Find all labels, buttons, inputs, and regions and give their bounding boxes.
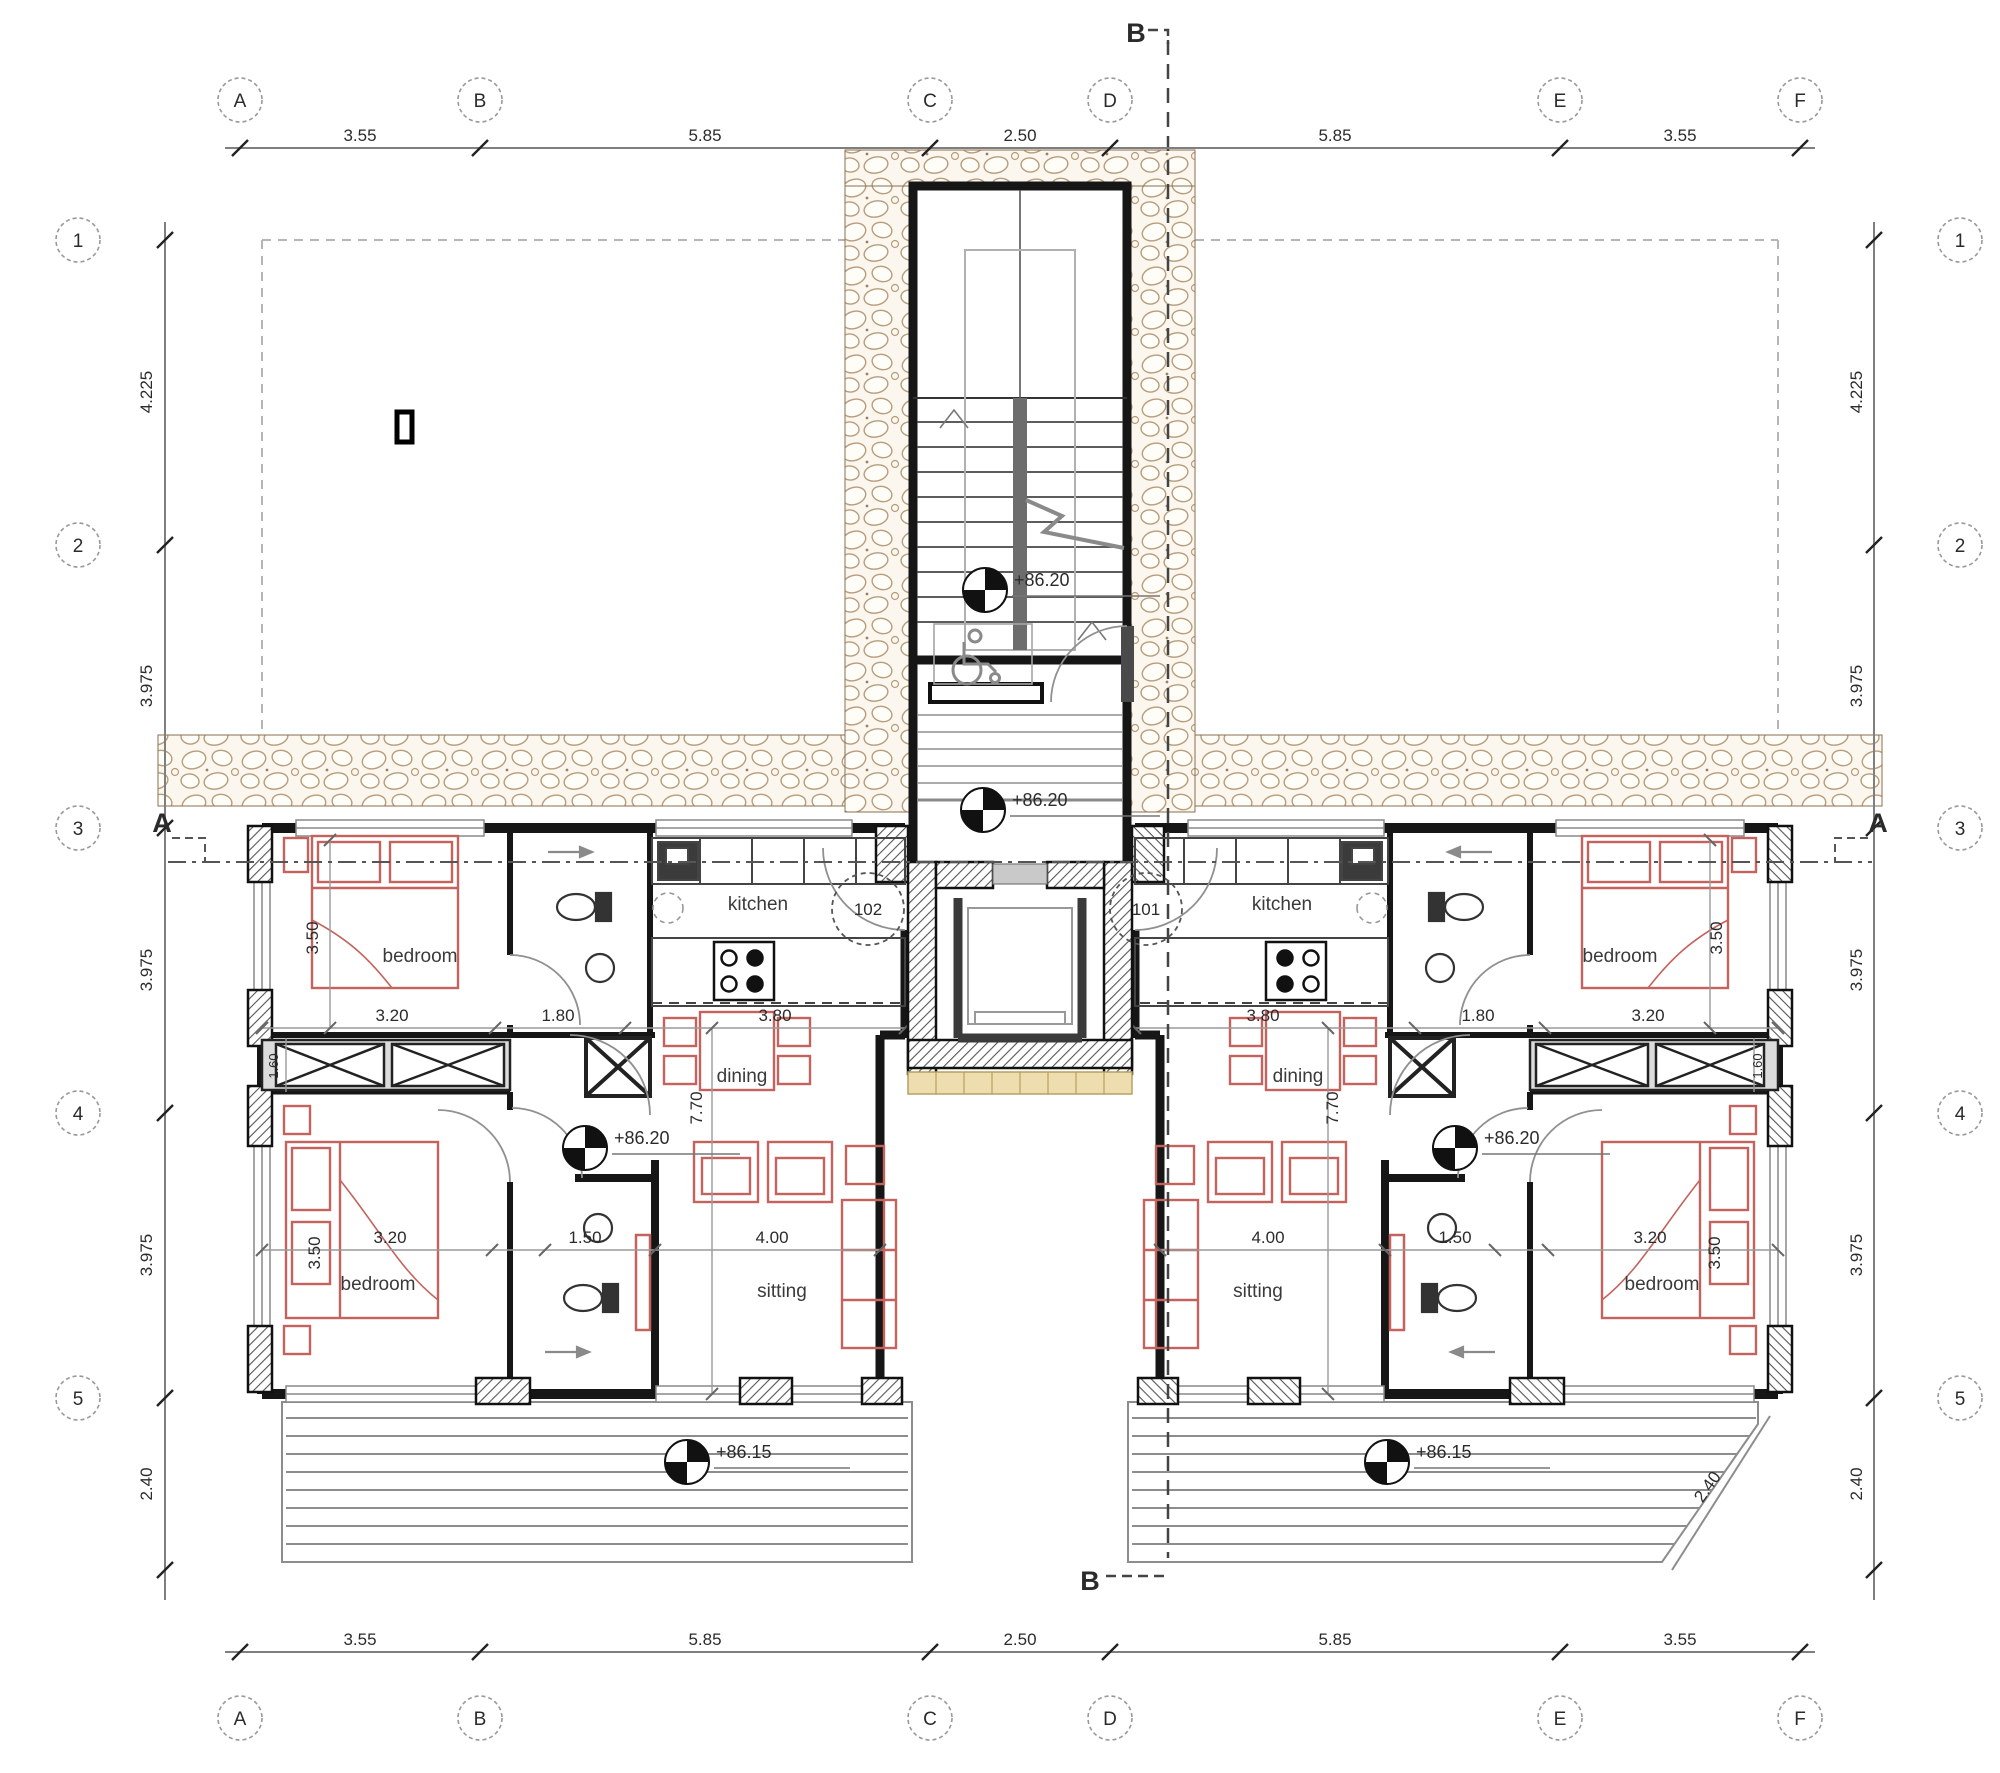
grid-col-b-bottom: B bbox=[474, 1709, 487, 1730]
grid-row-5-right: 5 bbox=[1955, 1389, 1966, 1410]
grid-row-2-left: 2 bbox=[73, 536, 84, 557]
dim-right-34: 3.975 bbox=[1847, 949, 1866, 992]
dim-left-5t: 2.40 bbox=[137, 1467, 156, 1500]
room-label-kitchen-left: kitchen bbox=[728, 894, 788, 915]
level-entrance-hall: +86.20 bbox=[1012, 790, 1068, 810]
dim-320-left-lower: 3.20 bbox=[373, 1228, 406, 1247]
room-label-sitting-right: sitting bbox=[1233, 1281, 1283, 1302]
dim-left-45: 3.975 bbox=[137, 1234, 156, 1277]
bathroom-fixtures bbox=[557, 893, 618, 1312]
room-label-bedroom-right-bottom: bedroom bbox=[1625, 1274, 1700, 1295]
dim-left-34: 3.975 bbox=[137, 949, 156, 992]
threshold bbox=[930, 684, 1042, 702]
unit-number-left: 102 bbox=[854, 900, 882, 919]
dim-150-left: 1.50 bbox=[568, 1228, 601, 1247]
grid-col-d-top: D bbox=[1103, 91, 1117, 112]
level-terrace-right: +86.15 bbox=[1416, 1442, 1472, 1462]
stair-rail bbox=[1013, 398, 1027, 650]
grid-col-d-bottom: D bbox=[1103, 1709, 1117, 1730]
room-label-sitting-left: sitting bbox=[757, 1281, 807, 1302]
unit-number-right: 101 bbox=[1132, 900, 1160, 919]
grid-col-a-bottom: A bbox=[234, 1709, 247, 1730]
room-label-bedroom-right-top: bedroom bbox=[1583, 946, 1658, 967]
grid-row-2-right: 2 bbox=[1955, 536, 1966, 557]
room-label-kitchen-right: kitchen bbox=[1252, 894, 1312, 915]
dim-bottom-de: 5.85 bbox=[1318, 1630, 1351, 1649]
dim-top-de: 5.85 bbox=[1318, 126, 1351, 145]
hob-icon bbox=[714, 942, 774, 1000]
floor-plan-drawing: A B C D E F A B C D E F 1 2 3 4 5 1 2 3 … bbox=[0, 0, 2000, 1773]
dim-bottom-ab: 3.55 bbox=[343, 1630, 376, 1649]
level-apartment-right: +86.20 bbox=[1484, 1128, 1540, 1148]
level-stair-landing: +86.20 bbox=[1014, 570, 1070, 590]
grid-row-1-right: 1 bbox=[1955, 231, 1966, 252]
dim-320-right-lower: 3.20 bbox=[1633, 1228, 1666, 1247]
room-label-dining-left: dining bbox=[717, 1066, 768, 1087]
grid-col-f-top: F bbox=[1794, 91, 1806, 112]
grid-row-3-left: 3 bbox=[73, 819, 84, 840]
room-label-bedroom-left-bottom: bedroom bbox=[341, 1274, 416, 1295]
section-a-left-label: A bbox=[152, 808, 172, 838]
terrace-right bbox=[1128, 1402, 1770, 1570]
dim-bedroom4-350-right: 3.50 bbox=[1705, 1236, 1724, 1269]
dim-320-left-upper: 3.20 bbox=[375, 1006, 408, 1025]
floor-plan-page: A B C D E F A B C D E F 1 2 3 4 5 1 2 3 … bbox=[0, 0, 2000, 1773]
dim-top-cd: 2.50 bbox=[1003, 126, 1036, 145]
lift-car bbox=[958, 898, 1082, 1038]
apartment-unit-geometry bbox=[248, 820, 911, 1404]
dim-180-left: 1.80 bbox=[541, 1006, 574, 1025]
structural-column bbox=[397, 412, 412, 442]
closet bbox=[262, 1040, 510, 1090]
kitchen-counter bbox=[652, 838, 905, 1006]
dim-380-left: 3.80 bbox=[758, 1006, 791, 1025]
dim-380-right: 3.80 bbox=[1246, 1006, 1279, 1025]
duct-shaft bbox=[586, 1038, 650, 1096]
section-a-right-label: A bbox=[1868, 808, 1888, 838]
dim-bottom-bc: 5.85 bbox=[688, 1630, 721, 1649]
grid-col-a-top: A bbox=[234, 91, 247, 112]
dim-770-left: 7.70 bbox=[687, 1091, 706, 1124]
dim-right-12: 4.225 bbox=[1847, 371, 1866, 414]
dim-top-ef: 3.55 bbox=[1663, 126, 1696, 145]
dim-bottom-ef: 3.55 bbox=[1663, 1630, 1696, 1649]
dim-150-right: 1.50 bbox=[1438, 1228, 1471, 1247]
dim-top-ab: 3.55 bbox=[343, 126, 376, 145]
dim-terrace-240-right: 2.40 bbox=[1690, 1468, 1725, 1506]
shower-panel bbox=[636, 1235, 650, 1330]
grid-row-5-left: 5 bbox=[73, 1389, 84, 1410]
dim-top-bc: 5.85 bbox=[688, 126, 721, 145]
dim-left-23: 3.975 bbox=[137, 665, 156, 708]
dim-320-right-upper: 3.20 bbox=[1631, 1006, 1664, 1025]
dim-400-left: 4.00 bbox=[755, 1228, 788, 1247]
grid-col-c-bottom: C bbox=[923, 1709, 937, 1730]
level-apartment-left: +86.20 bbox=[614, 1128, 670, 1148]
terrace-left bbox=[282, 1402, 912, 1562]
dim-right-5t: 2.40 bbox=[1847, 1467, 1866, 1500]
level-terrace-left: +86.15 bbox=[716, 1442, 772, 1462]
section-line-aa-right-corner bbox=[1835, 838, 1868, 862]
grid-col-b-top: B bbox=[474, 91, 487, 112]
dim-bottom-cd: 2.50 bbox=[1003, 1630, 1036, 1649]
dim-400-right: 4.00 bbox=[1251, 1228, 1284, 1247]
ceiling-light-icon bbox=[653, 893, 683, 923]
dim-bedroom3-350-right: 3.50 bbox=[1707, 921, 1726, 954]
section-b-top-label: B bbox=[1126, 18, 1146, 48]
grid-col-f-bottom: F bbox=[1794, 1709, 1806, 1730]
dim-160-right: 1.60 bbox=[1750, 1053, 1765, 1078]
grid-row-4-left: 4 bbox=[73, 1104, 84, 1125]
dim-770-right: 7.70 bbox=[1323, 1091, 1342, 1124]
dim-bedroom2-350-left: 3.50 bbox=[305, 1236, 324, 1269]
dim-right-45: 3.975 bbox=[1847, 1234, 1866, 1277]
section-line-aa-left-corner bbox=[172, 838, 205, 862]
entrance-door-leaf bbox=[1121, 626, 1134, 702]
grid-row-3-right: 3 bbox=[1955, 819, 1966, 840]
grid-col-e-top: E bbox=[1554, 91, 1567, 112]
grid-row-4-right: 4 bbox=[1955, 1104, 1966, 1125]
arrow-icon bbox=[545, 847, 592, 1357]
lift-door-sill bbox=[993, 864, 1047, 884]
grid-row-1-left: 1 bbox=[73, 231, 84, 252]
lift-shaft bbox=[908, 862, 1132, 1094]
grid-col-c-top: C bbox=[923, 91, 937, 112]
section-b-bottom-label: B bbox=[1080, 1566, 1100, 1596]
section-line-bb-top-corner bbox=[1148, 30, 1168, 44]
dim-right-23: 3.975 bbox=[1847, 665, 1866, 708]
room-label-bedroom-left-top: bedroom bbox=[383, 946, 458, 967]
apartment-unit-geometry-mirrored bbox=[1129, 820, 1792, 1404]
room-label-dining-right: dining bbox=[1273, 1066, 1324, 1087]
dim-180-right: 1.80 bbox=[1461, 1006, 1494, 1025]
dim-bedroom1-350-left: 3.50 bbox=[303, 921, 322, 954]
grid-col-e-bottom: E bbox=[1554, 1709, 1567, 1730]
dim-left-12: 4.225 bbox=[137, 371, 156, 414]
dim-160-left: 1.60 bbox=[266, 1053, 281, 1078]
